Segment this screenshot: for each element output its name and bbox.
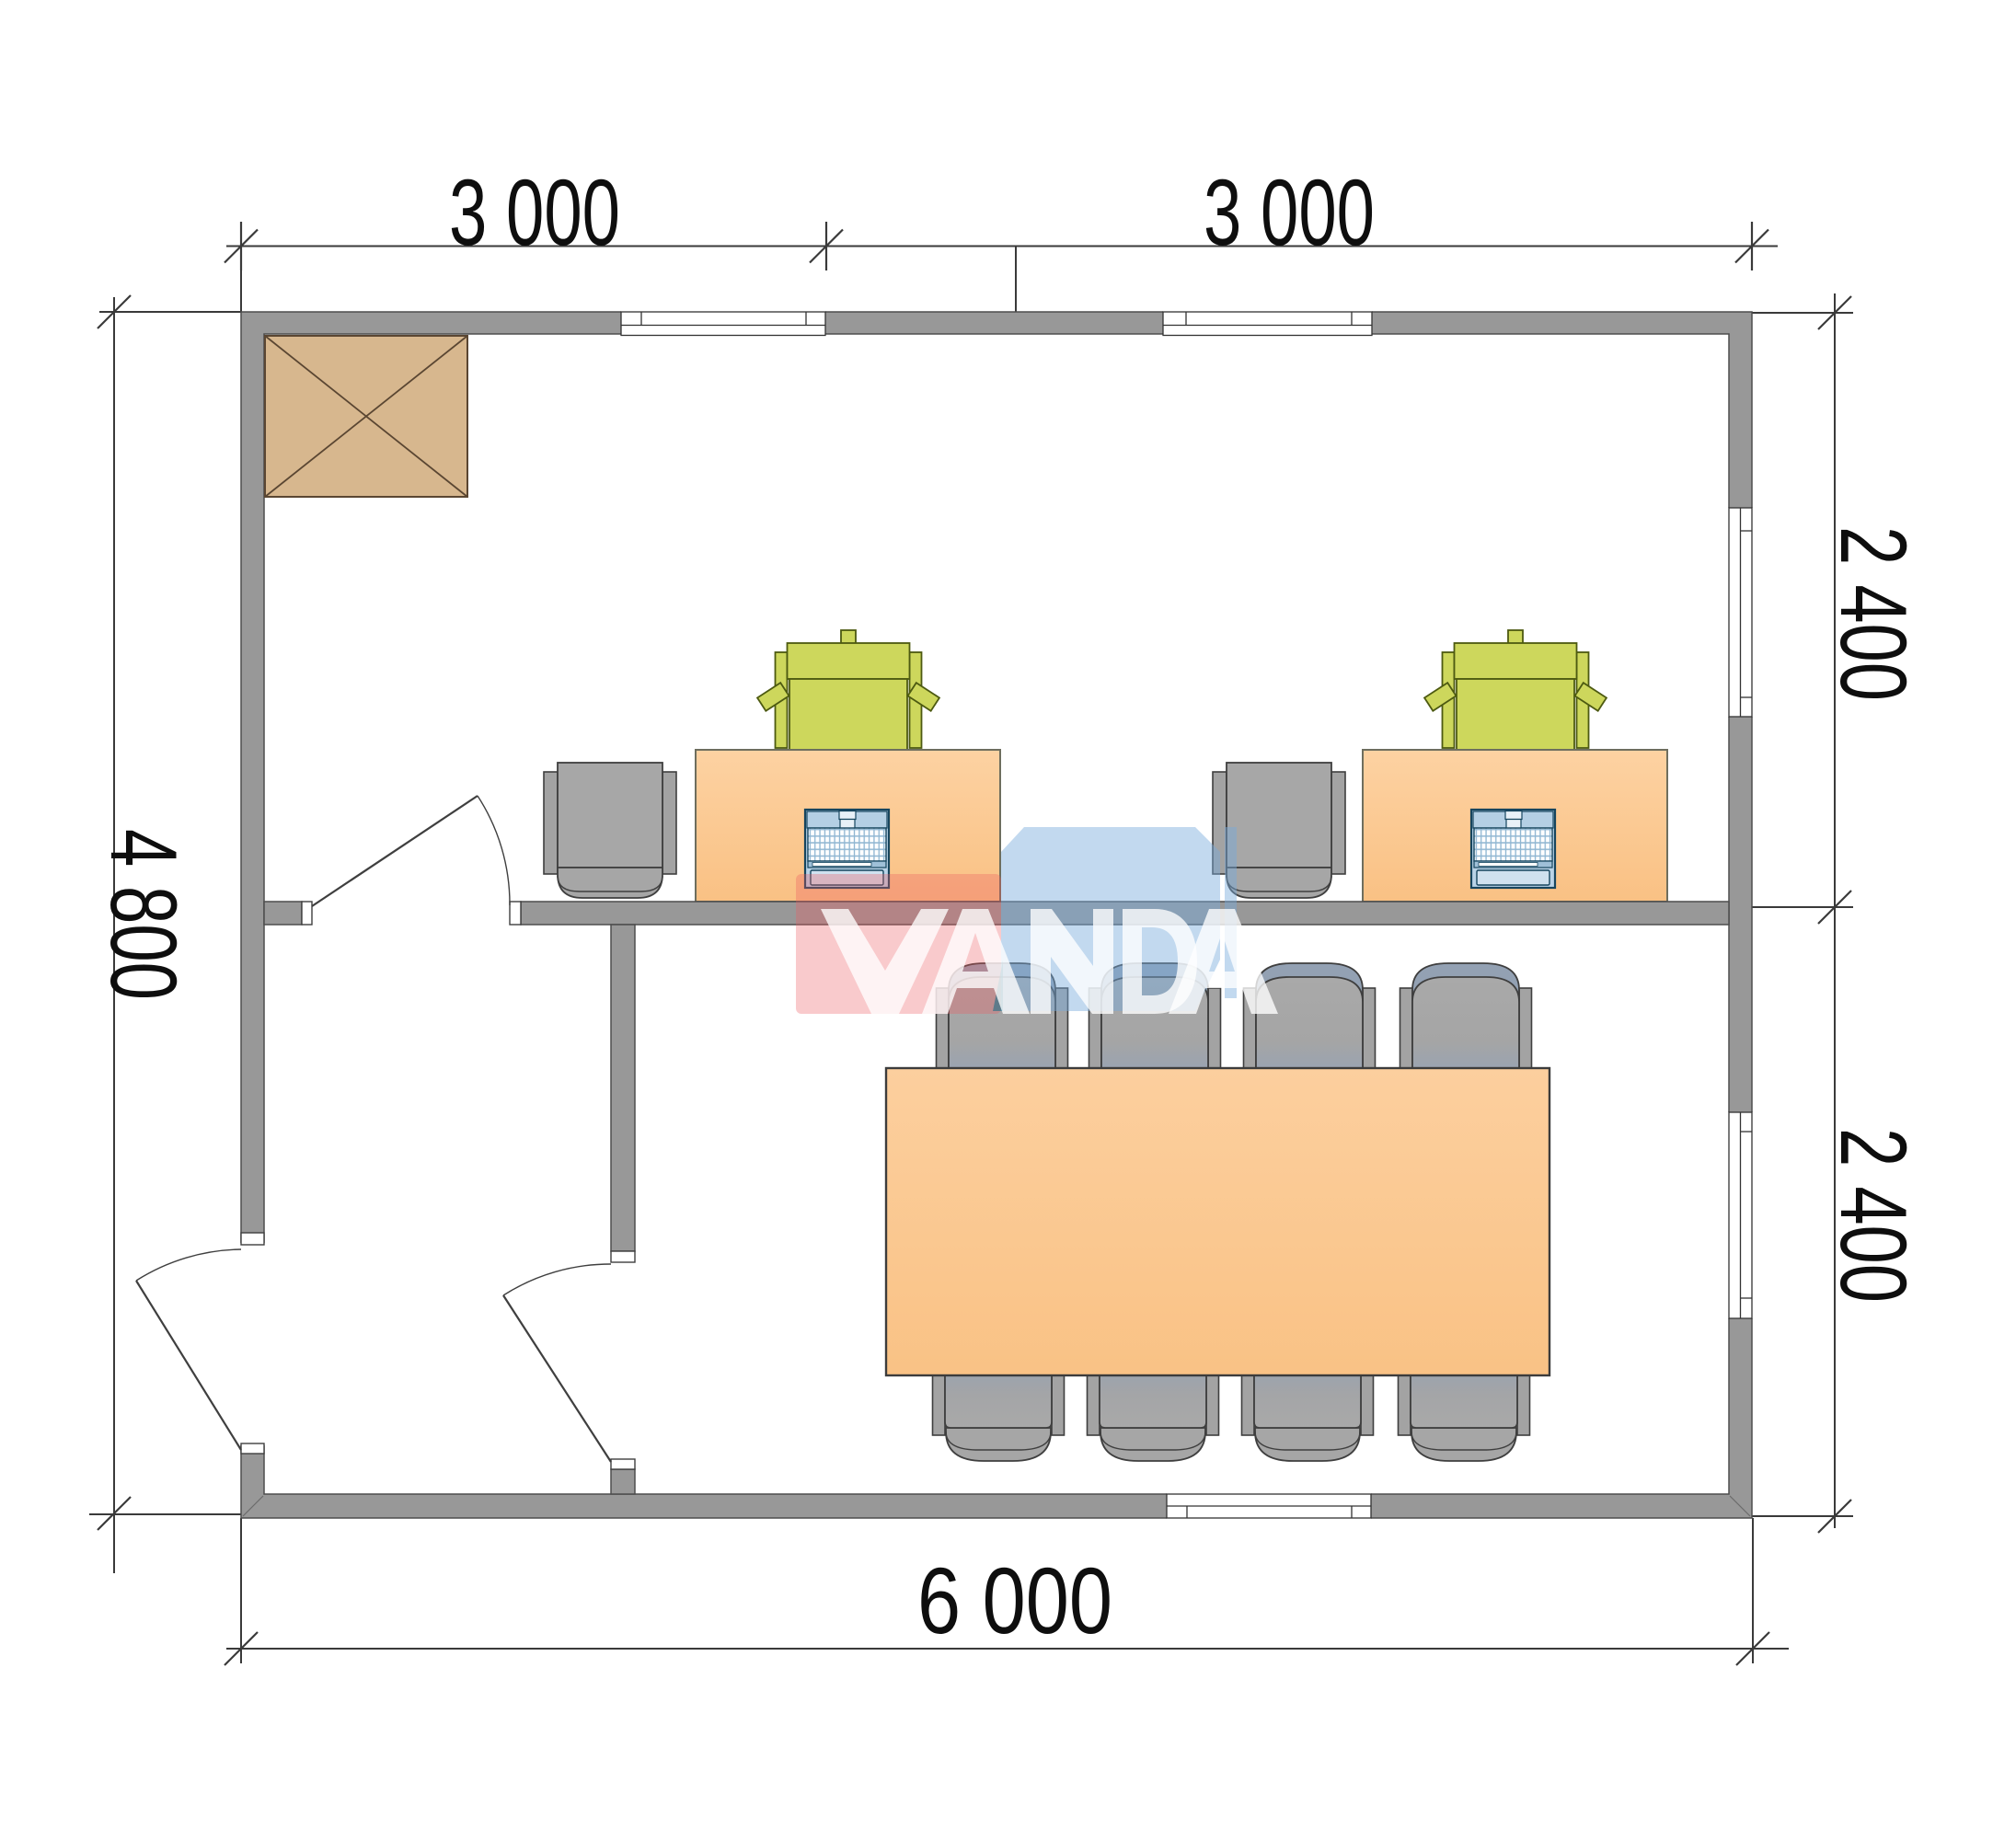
svg-text:3 000: 3 000 (1204, 160, 1375, 265)
svg-text:4 800: 4 800 (91, 829, 196, 1000)
svg-text:3 000: 3 000 (449, 160, 620, 265)
svg-text:2 400: 2 400 (1821, 1128, 1926, 1303)
svg-text:2 400: 2 400 (1821, 526, 1926, 701)
svg-text:6 000: 6 000 (917, 1548, 1112, 1653)
